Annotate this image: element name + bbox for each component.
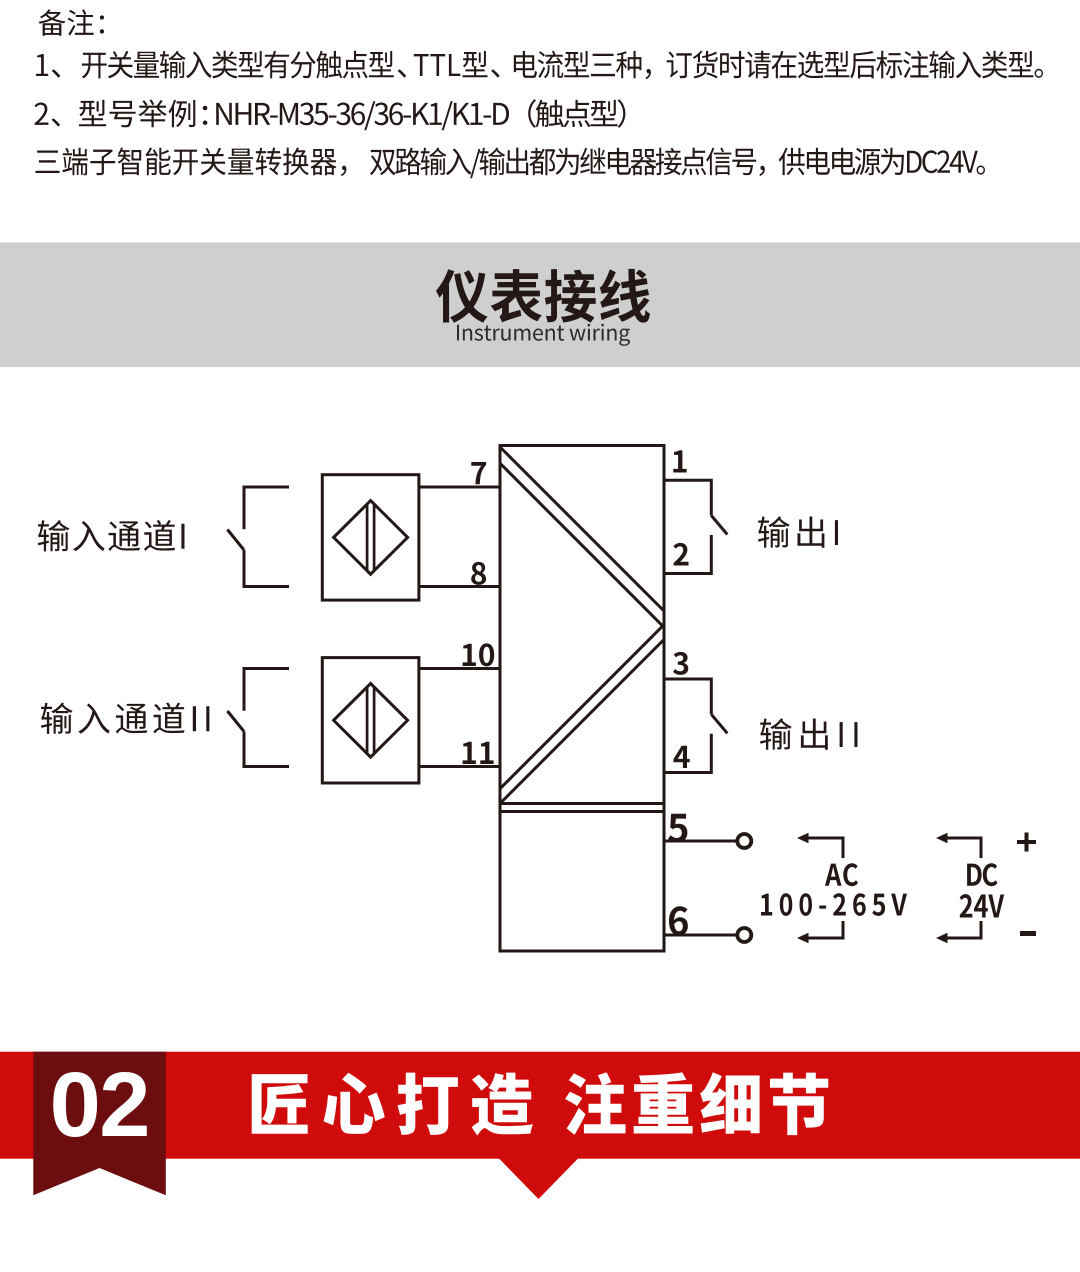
svg-text:02: 02 — [50, 1054, 149, 1156]
